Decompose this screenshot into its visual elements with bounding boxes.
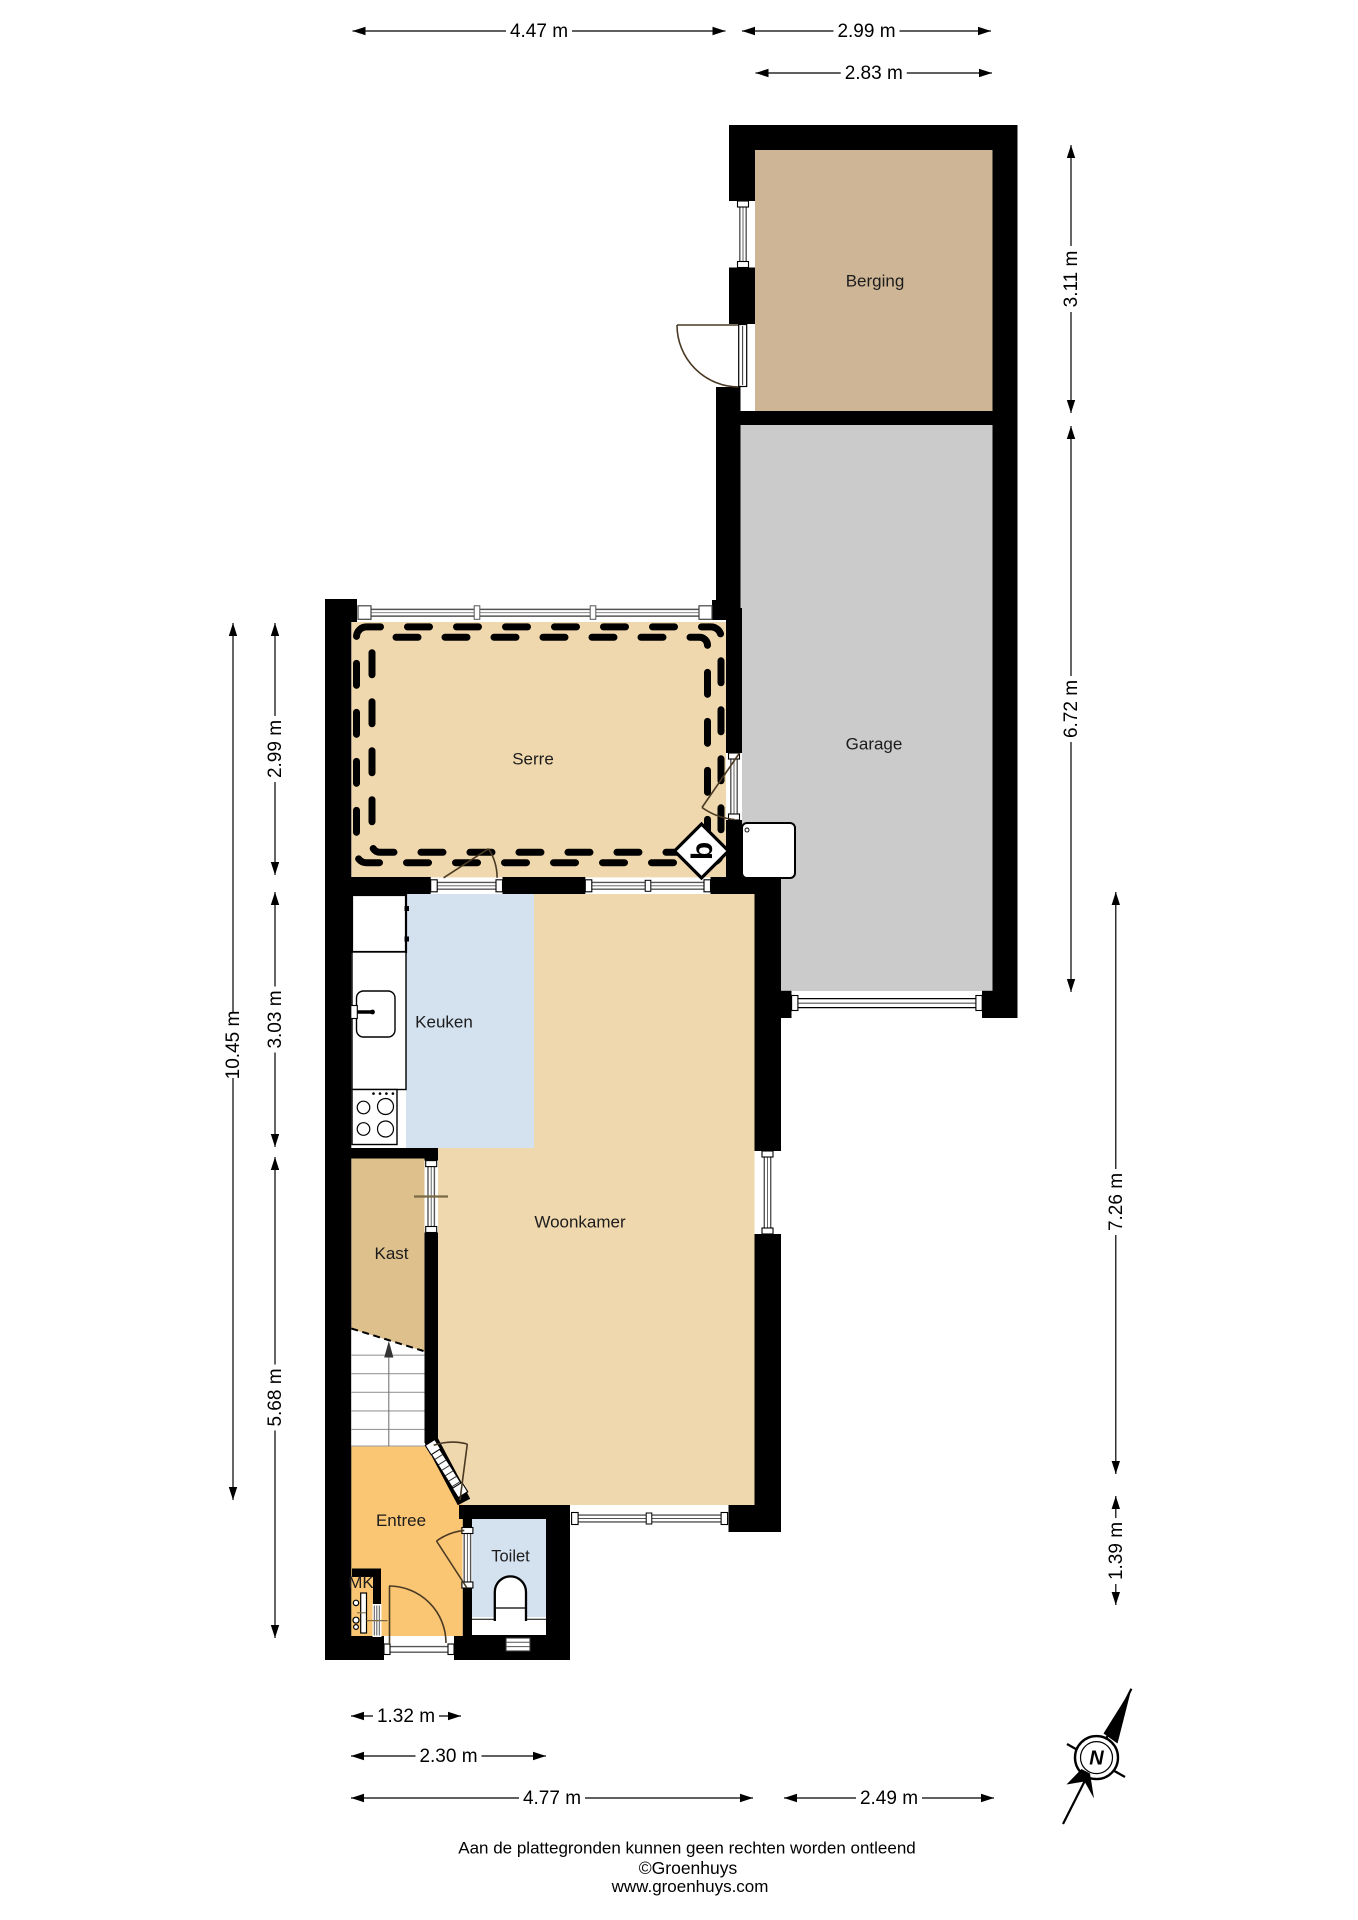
svg-text:6.72 m: 6.72 m [1061, 680, 1082, 738]
svg-text:Garage: Garage [846, 735, 903, 754]
svg-text:Woonkamer: Woonkamer [534, 1213, 626, 1232]
svg-text:5.68 m: 5.68 m [265, 1368, 286, 1426]
svg-text:2.49 m: 2.49 m [860, 1788, 918, 1809]
svg-text:10.45 m: 10.45 m [223, 1011, 244, 1080]
svg-text:Kast: Kast [374, 1244, 408, 1263]
svg-text:Entree: Entree [376, 1511, 426, 1530]
svg-text:N: N [1089, 1748, 1104, 1770]
svg-text:3.03 m: 3.03 m [265, 990, 286, 1048]
svg-text:7.26 m: 7.26 m [1106, 1173, 1127, 1231]
svg-text:Berging: Berging [846, 272, 905, 291]
svg-text:Serre: Serre [512, 750, 554, 769]
svg-text:MK: MK [348, 1573, 374, 1592]
svg-text:©Groenhuys: ©Groenhuys [639, 1858, 738, 1878]
svg-text:2.83 m: 2.83 m [845, 63, 903, 84]
svg-text:2.99 m: 2.99 m [265, 720, 286, 778]
svg-text:2.99 m: 2.99 m [837, 21, 895, 42]
svg-text:1.32 m: 1.32 m [377, 1706, 435, 1727]
svg-text:Aan de plattegronden kunnen ge: Aan de plattegronden kunnen geen rechten… [458, 1839, 915, 1858]
svg-text:b: b [686, 842, 719, 860]
svg-text:Toilet: Toilet [491, 1548, 530, 1566]
svg-text:4.77 m: 4.77 m [523, 1788, 581, 1809]
svg-text:1.39 m: 1.39 m [1106, 1522, 1127, 1580]
svg-text:4.47 m: 4.47 m [510, 21, 568, 42]
svg-text:3.11 m: 3.11 m [1061, 251, 1082, 308]
svg-text:2.30 m: 2.30 m [419, 1746, 477, 1767]
svg-text:Keuken: Keuken [415, 1013, 473, 1032]
svg-text:www.groenhuys.com: www.groenhuys.com [611, 1877, 769, 1896]
